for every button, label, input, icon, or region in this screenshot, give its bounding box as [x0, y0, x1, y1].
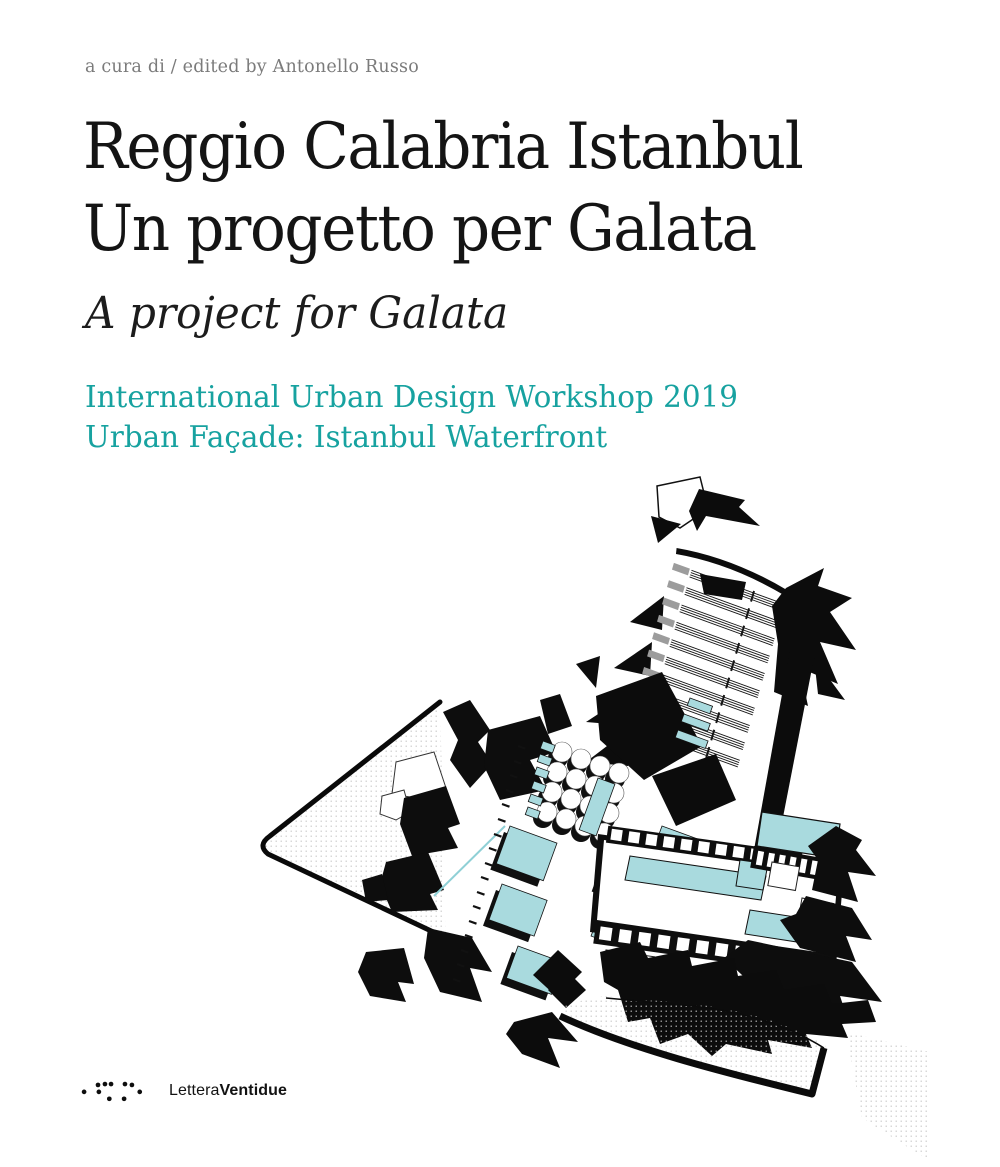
braille-dots-icon [78, 1071, 158, 1111]
site-plan-illustration [0, 0, 1000, 1167]
publisher-logo: LetteraVentidue [78, 1071, 287, 1111]
publisher-name: LetteraVentidue [169, 1082, 287, 1100]
book-cover: a cura di / edited by Antonello Russo Re… [0, 0, 1000, 1167]
publisher-name-bold: Ventidue [220, 1082, 287, 1099]
publisher-name-regular: Lettera [169, 1082, 220, 1099]
plan-top-ornament [651, 477, 760, 543]
